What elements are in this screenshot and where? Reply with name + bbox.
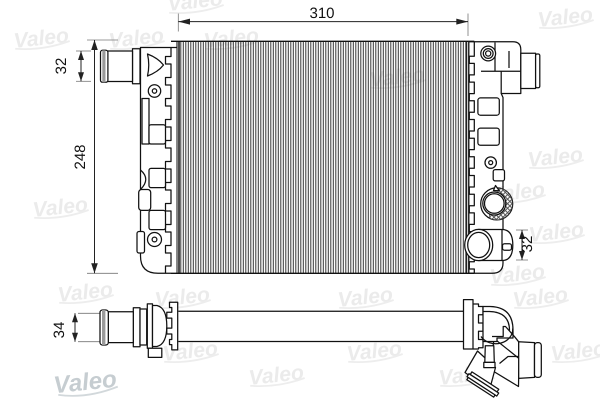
svg-text:34: 34 <box>51 322 68 339</box>
svg-text:310: 310 <box>309 5 334 22</box>
svg-text:248: 248 <box>72 144 89 169</box>
svg-text:32: 32 <box>53 58 70 75</box>
svg-text:32: 32 <box>519 236 536 253</box>
